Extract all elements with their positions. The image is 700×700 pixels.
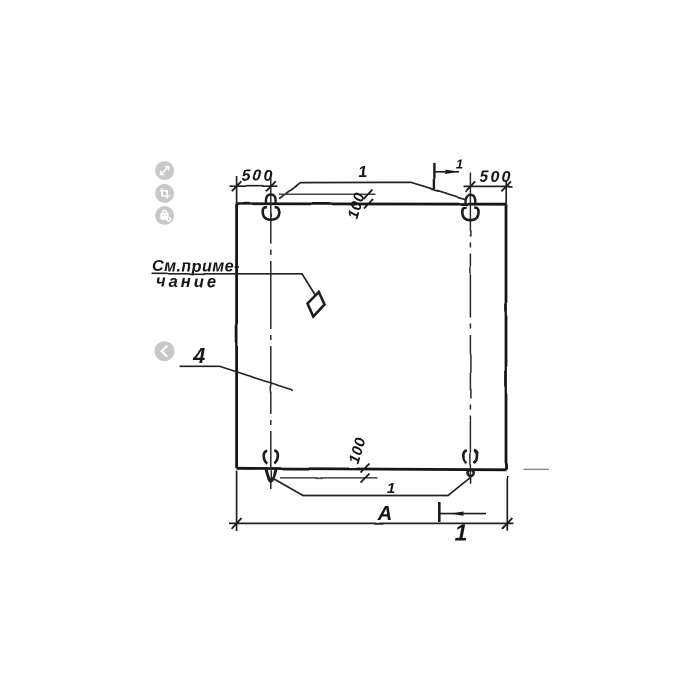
svg-text:А: А (377, 503, 392, 525)
svg-text:1: 1 (387, 480, 395, 497)
svg-text:500: 500 (480, 169, 513, 186)
svg-text:чание: чание (156, 273, 219, 291)
svg-text:500: 500 (242, 168, 275, 185)
svg-text:100: 100 (346, 435, 370, 465)
svg-text:4: 4 (192, 345, 205, 368)
svg-text:1: 1 (455, 520, 468, 546)
svg-text:1: 1 (455, 157, 462, 172)
svg-text:1: 1 (359, 164, 368, 181)
